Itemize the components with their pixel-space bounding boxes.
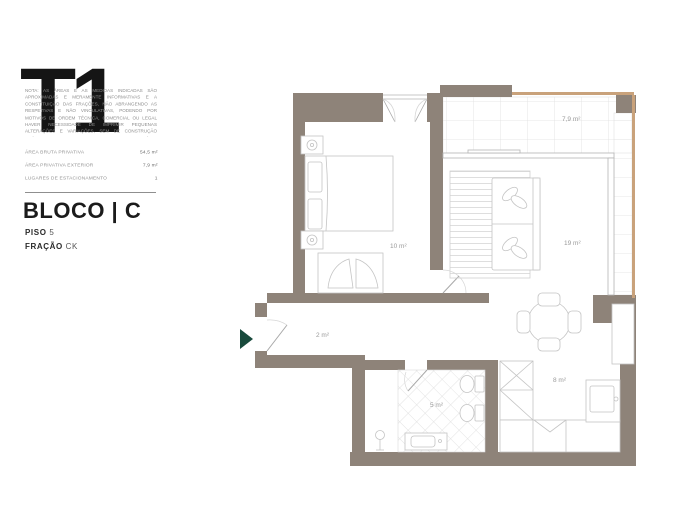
washbasin [411, 436, 435, 447]
fracao-label: FRAÇÃO [25, 242, 63, 251]
chair [568, 311, 581, 333]
area-value: 1 [155, 175, 158, 188]
disclaimer-text: NOTA: AS ÁREAS E AS MEDIDAS INDICADAS SÃ… [25, 87, 157, 137]
area-row-estacionamento: LUGARES DE ESTACIONAMENTO 1 [25, 175, 158, 188]
floor-plan: 7,9 m² 10 m² 19 m² 2 m² 5 m² 8 m² [230, 82, 670, 482]
chair [538, 293, 560, 306]
chair [517, 311, 530, 333]
bidet-tank [475, 405, 484, 421]
area-row-bruta: ÁREA BRUTA PRIVATIVA 54,5 m² [25, 149, 158, 162]
area-label: ÁREA BRUTA PRIVATIVA [25, 149, 84, 162]
label-quarto: 10 m² [390, 243, 407, 250]
divider [25, 192, 156, 193]
shower-head-icon [376, 431, 385, 440]
fracao-value: CK [66, 242, 78, 251]
floor-plan-drawing: 7,9 m² 10 m² 19 m² 2 m² 5 m² 8 m² [230, 82, 670, 482]
tall-cabinet [500, 361, 533, 420]
toilet [460, 376, 474, 393]
bedroom-furniture [301, 136, 393, 293]
entrance-arrow-icon [240, 329, 253, 349]
duct-shaft [612, 304, 634, 364]
kitchen-furniture [500, 293, 634, 452]
bathroom [376, 370, 486, 452]
entrance [240, 320, 287, 351]
label-varanda: 7,9 m² [562, 116, 581, 123]
area-row-exterior: ÁREA PRIVATIVA EXTERIOR 7,9 m² [25, 162, 158, 175]
chair [538, 338, 560, 351]
block-title: BLOCO | C [23, 198, 141, 224]
label-sala: 19 m² [564, 240, 581, 247]
area-label: LUGARES DE ESTACIONAMENTO [25, 175, 107, 188]
bidet [460, 405, 474, 422]
label-instalacao-sanitaria: 5 m² [430, 402, 444, 409]
faucet-icon [614, 397, 618, 401]
pillow [308, 162, 322, 192]
piso-value: 5 [49, 228, 54, 237]
label-cozinha: 8 m² [553, 377, 567, 384]
dining-table [528, 301, 570, 343]
faucet-icon [439, 440, 442, 443]
area-value: 54,5 m² [140, 149, 158, 162]
piso-label: PISO [25, 228, 47, 237]
fracao-row: FRAÇÃO CK [25, 242, 78, 251]
floor-plan-page: T1 NOTA: AS ÁREAS E AS MEDIDAS INDICADAS… [0, 0, 690, 506]
area-label: ÁREA PRIVATIVA EXTERIOR [25, 162, 93, 175]
pillow [308, 199, 322, 229]
area-value: 7,9 m² [143, 162, 158, 175]
toilet-tank [475, 376, 484, 392]
living-furniture [450, 171, 540, 278]
sink [590, 386, 614, 412]
piso-row: PISO 5 [25, 228, 54, 237]
bedroom-french-door [383, 95, 427, 122]
label-hall: 2 m² [316, 332, 330, 339]
disclaimer-block: NOTA: AS ÁREAS E AS MEDIDAS INDICADAS SÃ… [25, 87, 157, 137]
